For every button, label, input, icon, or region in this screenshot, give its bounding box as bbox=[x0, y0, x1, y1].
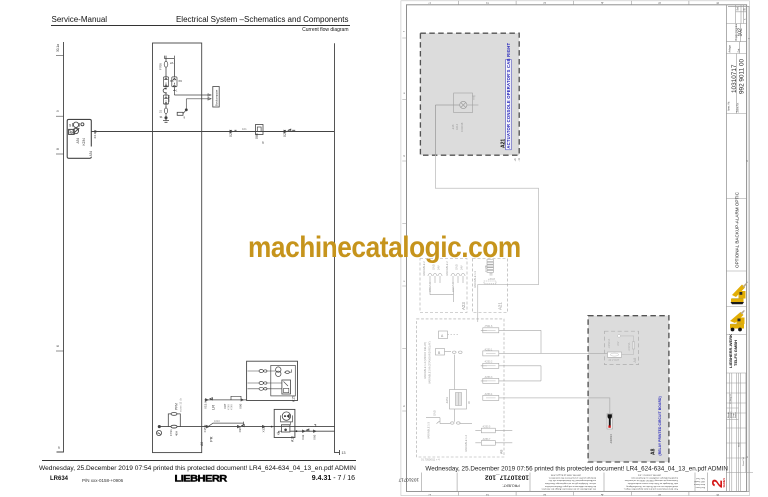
svg-text:X274: X274 bbox=[229, 129, 233, 137]
svg-text:1: 1 bbox=[428, 2, 432, 4]
svg-text:31: 31 bbox=[159, 110, 163, 113]
svg-text:X15.9: X15.9 bbox=[204, 401, 208, 409]
svg-text:A34: A34 bbox=[89, 151, 93, 157]
svg-text:Bl.: Bl. bbox=[744, 7, 747, 10]
svg-text:f: f bbox=[747, 38, 751, 39]
svg-text:2: 2 bbox=[486, 2, 490, 4]
svg-text:A15: A15 bbox=[291, 436, 295, 442]
svg-text:X32: X32 bbox=[301, 434, 305, 440]
svg-text:Item.-Nr.: Item.-Nr. bbox=[726, 101, 730, 111]
svg-text:30: 30 bbox=[467, 401, 471, 404]
svg-text:X4.1: X4.1 bbox=[93, 132, 97, 138]
svg-text:Erst lesen: Erst lesen bbox=[695, 486, 705, 489]
svg-text:Bordcomputer: Bordcomputer bbox=[215, 90, 219, 106]
svg-text:+X9.8: +X9.8 bbox=[488, 277, 495, 281]
svg-text:8: 8 bbox=[56, 148, 60, 150]
svg-text:stand behalten wir uns alle Re: stand behalten wir uns alle Rechte vor. … bbox=[626, 485, 678, 488]
svg-text:sichern. Schaltplan gilt nur m: sichern. Schaltplan gilt nur mit zugehoe… bbox=[544, 482, 596, 485]
svg-text:X32: X32 bbox=[262, 427, 266, 433]
svg-text:Blatt: Blatt bbox=[738, 442, 741, 447]
svg-text:Projekt-Vorgabe: Projekt-Vorgabe bbox=[735, 23, 738, 41]
svg-text:-Y501.6: -Y501.6 bbox=[484, 325, 493, 328]
svg-text:VARIABLE 1-4 (MICRO RELAY): VARIABLE 1-4 (MICRO RELAY) bbox=[423, 342, 427, 379]
svg-text:A21: A21 bbox=[498, 302, 503, 310]
svg-text:(RELAY PRINTED CIRCUIT BOARD): (RELAY PRINTED CIRCUIT BOARD) bbox=[658, 396, 662, 455]
svg-text:X96: X96 bbox=[239, 403, 243, 409]
svg-text:01.7050/011 + 4: 01.7050/011 + 4 bbox=[421, 458, 440, 462]
svg-text:5: 5 bbox=[658, 2, 662, 4]
svg-text:4: 4 bbox=[601, 494, 605, 496]
svg-text:die Batterien abklemmen und ge: die Batterien abklemmen und gegen Wieder… bbox=[544, 485, 596, 488]
svg-text:24V: 24V bbox=[460, 265, 464, 270]
svg-text:X86: X86 bbox=[255, 133, 259, 139]
svg-text:K234: K234 bbox=[82, 138, 86, 146]
svg-text:X6: X6 bbox=[178, 79, 182, 83]
svg-text:SERIES: SERIES bbox=[722, 478, 726, 488]
svg-text:1: 1 bbox=[176, 90, 178, 93]
svg-text:-X18/13: -X18/13 bbox=[609, 434, 613, 444]
svg-text:10310717: 10310717 bbox=[731, 64, 738, 93]
svg-text:-K253: -K253 bbox=[445, 397, 449, 404]
svg-text:Wednesday, 25.December 2019 07: Wednesday, 25.December 2019 07:56 printe… bbox=[425, 466, 728, 473]
svg-text:6: 6 bbox=[716, 2, 720, 4]
svg-text:d: d bbox=[402, 155, 406, 157]
svg-text:OPTIONAL BACKUP-ALARM OPTIC: OPTIONAL BACKUP-ALARM OPTIC bbox=[735, 191, 740, 268]
svg-text:4X14: 4X14 bbox=[455, 123, 459, 130]
svg-text:-X253.3: -X253.3 bbox=[484, 376, 493, 379]
svg-text:25.Aug.06: 25.Aug.06 bbox=[729, 393, 732, 404]
svg-text:-X253.2: -X253.2 bbox=[484, 361, 493, 364]
svg-text:102: 102 bbox=[737, 28, 743, 37]
svg-text:10310717: 10310717 bbox=[398, 478, 419, 483]
svg-text:4: 4 bbox=[601, 2, 605, 4]
svg-text:5: 5 bbox=[658, 494, 662, 496]
svg-text:Zchn.Nr.: Zchn.Nr. bbox=[735, 102, 739, 112]
svg-text:GND: GND bbox=[433, 410, 437, 416]
svg-text:A: A bbox=[441, 334, 444, 338]
svg-text:X7/GND: X7/GND bbox=[451, 282, 455, 292]
svg-text:24V: 24V bbox=[437, 265, 441, 270]
svg-text:31: 31 bbox=[160, 115, 164, 119]
svg-text:4749: 4749 bbox=[230, 404, 234, 410]
svg-text:F708: F708 bbox=[159, 63, 163, 70]
svg-text:1010: 1010 bbox=[214, 419, 220, 423]
svg-text:6: 6 bbox=[716, 494, 720, 496]
svg-text:X7/GND: X7/GND bbox=[486, 264, 488, 272]
svg-text:A8: A8 bbox=[632, 357, 637, 363]
svg-text:-E16: -E16 bbox=[451, 124, 455, 130]
svg-text:X15.9: X15.9 bbox=[203, 424, 207, 432]
svg-text:-K40 5A: -K40 5A bbox=[628, 342, 631, 351]
svg-text:Datei/Tid: Datei/Tid bbox=[742, 457, 745, 466]
svg-text:Fuer dieses Dokument und den d: Fuer dieses Dokument und den darin darge… bbox=[624, 488, 678, 491]
svg-text:3: 3 bbox=[543, 2, 547, 4]
svg-text:PFM: PFM bbox=[175, 403, 179, 410]
svg-text:+K: +K bbox=[513, 158, 517, 162]
svg-text:6: 6 bbox=[56, 345, 60, 347]
svg-text:F721: F721 bbox=[169, 429, 173, 436]
svg-text:Telfs Tirol: Telfs Tirol bbox=[696, 477, 705, 480]
svg-text:Bel.: Bel. bbox=[737, 6, 740, 10]
svg-text:VARIABLE 1-4: VARIABLE 1-4 bbox=[464, 434, 468, 452]
svg-text:Dat.: Dat. bbox=[738, 48, 741, 53]
svg-text:S: S bbox=[69, 123, 72, 127]
svg-text:TELFS GMBH: TELFS GMBH bbox=[733, 340, 738, 366]
svg-text:10/2018: 10/2018 bbox=[460, 122, 464, 132]
svg-text:992 9011 00: 992 9011 00 bbox=[739, 58, 746, 94]
svg-text:LR: LR bbox=[211, 405, 216, 410]
svg-text:und Aenderungsstand. Vor Inbet: und Aenderungsstand. Vor Inbetriebnahme … bbox=[548, 479, 596, 482]
svg-text:9: 9 bbox=[184, 116, 186, 120]
svg-text:X97: X97 bbox=[223, 403, 227, 409]
svg-text:A6: A6 bbox=[200, 442, 204, 446]
svg-text:30.1a: 30.1a bbox=[56, 44, 60, 52]
svg-text:f: f bbox=[402, 31, 406, 32]
svg-text:-X253/14: -X253/14 bbox=[608, 338, 611, 348]
svg-text:10310717_102: 10310717_102 bbox=[485, 474, 529, 481]
svg-text:LWT/TEL 10310717_102: LWT/TEL 10310717_102 bbox=[637, 474, 661, 476]
svg-text:-X253.4: -X253.4 bbox=[484, 393, 493, 396]
svg-text:A15: A15 bbox=[292, 396, 296, 402]
svg-text:24V: 24V bbox=[617, 341, 620, 346]
svg-text:1: 1 bbox=[428, 494, 432, 496]
svg-text:LWT/TEL 04/06 ab Baujahr 2006: LWT/TEL 04/06 ab Baujahr 2006 bbox=[550, 474, 581, 477]
svg-text:13: 13 bbox=[342, 451, 346, 455]
svg-text:Name: Name bbox=[735, 411, 737, 418]
svg-text:A8: A8 bbox=[651, 448, 657, 455]
svg-text:dann bauen: dann bauen bbox=[693, 483, 705, 485]
svg-text:Vor allen Arbeiten an der elek: Vor allen Arbeiten an der elektrischen A… bbox=[542, 488, 596, 491]
svg-text:101: 101 bbox=[242, 127, 247, 131]
svg-text:X274: X274 bbox=[283, 129, 287, 137]
svg-text:40A: 40A bbox=[175, 431, 179, 436]
svg-text:3: 3 bbox=[543, 494, 547, 496]
svg-text:B: B bbox=[438, 351, 441, 355]
svg-text:bindungen pruefen und auf fest: bindungen pruefen und auf festen Sitz ko… bbox=[548, 476, 596, 479]
svg-text:-11: -11 bbox=[517, 157, 521, 161]
svg-text:ACTUATOR CONSOLE OPERATOR'S CA: ACTUATOR CONSOLE OPERATOR'S CAB RIGHT bbox=[506, 43, 511, 149]
svg-text:X7/GND: X7/GND bbox=[428, 282, 432, 292]
svg-text:b: b bbox=[402, 405, 406, 407]
svg-text:VARIABLE 1-3: VARIABLE 1-3 bbox=[427, 421, 431, 439]
svg-text:Zuwiderhandlungen verpflichten: Zuwiderhandlungen verpflichten zu Schade… bbox=[630, 476, 678, 479]
svg-text:-X253.5: -X253.5 bbox=[482, 426, 491, 429]
svg-text:c: c bbox=[402, 280, 406, 282]
svg-text:xxxxx-12 t.b: xxxxx-12 t.b bbox=[179, 398, 183, 412]
svg-text:-X253.1: -X253.1 bbox=[484, 348, 493, 351]
svg-text:Zustimmung ist untersagt. DIN: Zustimmung ist untersagt. DIN ISO 16016 … bbox=[624, 479, 678, 482]
svg-text:9: 9 bbox=[58, 446, 60, 450]
svg-text:VARIABLE 1-3: VARIABLE 1-3 bbox=[473, 270, 477, 288]
svg-text:X708: X708 bbox=[167, 95, 171, 102]
svg-text:oder Weitergabe an Dritte ohne: oder Weitergabe an Dritte ohne unsere au… bbox=[627, 482, 678, 485]
svg-text:X96: X96 bbox=[238, 427, 242, 433]
svg-text:A34: A34 bbox=[76, 138, 80, 144]
svg-text:VARIABLE 5-8 (STANDARD RELAY): VARIABLE 5-8 (STANDARD RELAY) bbox=[427, 341, 431, 384]
svg-text:Anlage: Anlage bbox=[729, 44, 732, 52]
svg-text:LWT GmbH: LWT GmbH bbox=[694, 480, 705, 482]
svg-text:2A: 2A bbox=[170, 61, 174, 65]
svg-text:2: 2 bbox=[486, 494, 490, 496]
svg-text:X66: X66 bbox=[313, 434, 317, 440]
svg-text:A23: A23 bbox=[461, 302, 466, 310]
svg-text:PROJEKT:: PROJEKT: bbox=[502, 484, 519, 488]
svg-text:-X253.7: -X253.7 bbox=[482, 438, 491, 441]
svg-text:9: 9 bbox=[262, 141, 264, 145]
svg-text:9: 9 bbox=[56, 110, 60, 112]
svg-text:A8: A8 bbox=[500, 450, 504, 454]
svg-text:24 V OUT: 24 V OUT bbox=[609, 359, 620, 362]
svg-text:PR: PR bbox=[209, 436, 214, 442]
svg-text:e: e bbox=[402, 92, 406, 94]
